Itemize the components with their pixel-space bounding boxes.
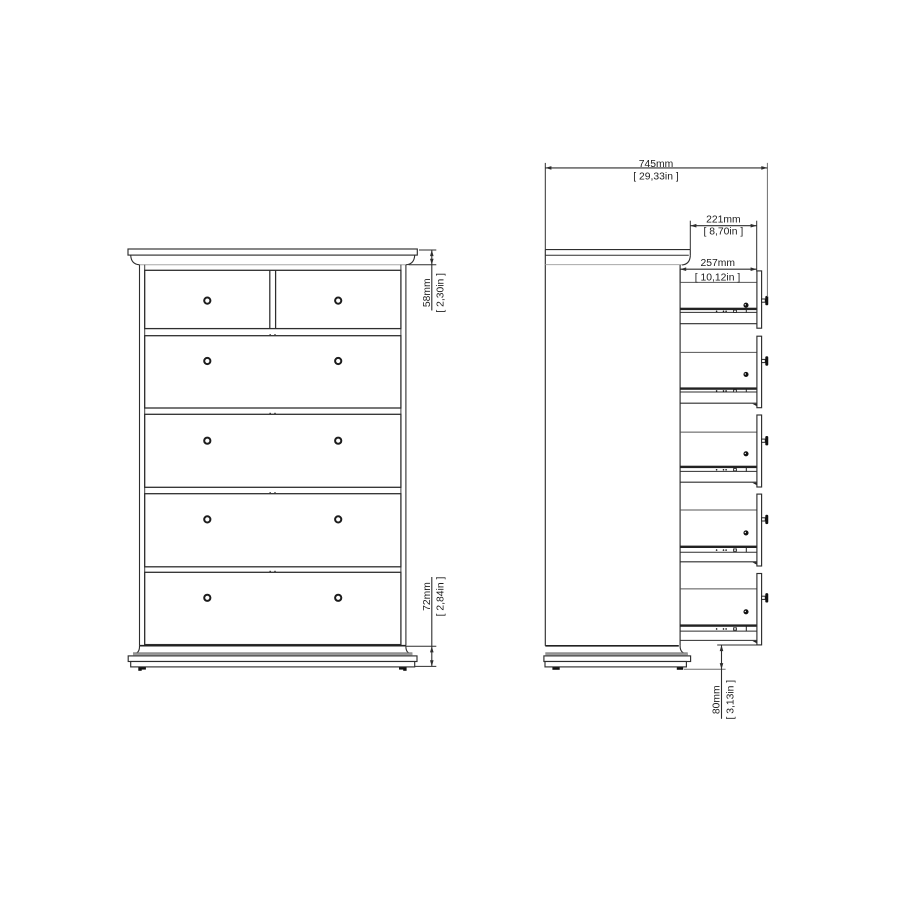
svg-text:58mm: 58mm <box>422 278 433 307</box>
svg-text:80mm: 80mm <box>711 685 722 714</box>
svg-text:[ 29,33in ]: [ 29,33in ] <box>633 171 679 182</box>
svg-text:[ 3,13in ]: [ 3,13in ] <box>726 680 737 720</box>
svg-text:[ 2,84in ]: [ 2,84in ] <box>435 577 446 617</box>
svg-text:[ 2,30in ]: [ 2,30in ] <box>435 273 446 313</box>
svg-text:221mm: 221mm <box>706 215 741 226</box>
svg-text:[ 10,12in ]: [ 10,12in ] <box>695 273 741 284</box>
svg-text:[ 8,70in ]: [ 8,70in ] <box>704 227 744 238</box>
svg-text:745mm: 745mm <box>639 159 674 170</box>
svg-text:72mm: 72mm <box>422 582 433 611</box>
svg-text:257mm: 257mm <box>701 258 736 269</box>
